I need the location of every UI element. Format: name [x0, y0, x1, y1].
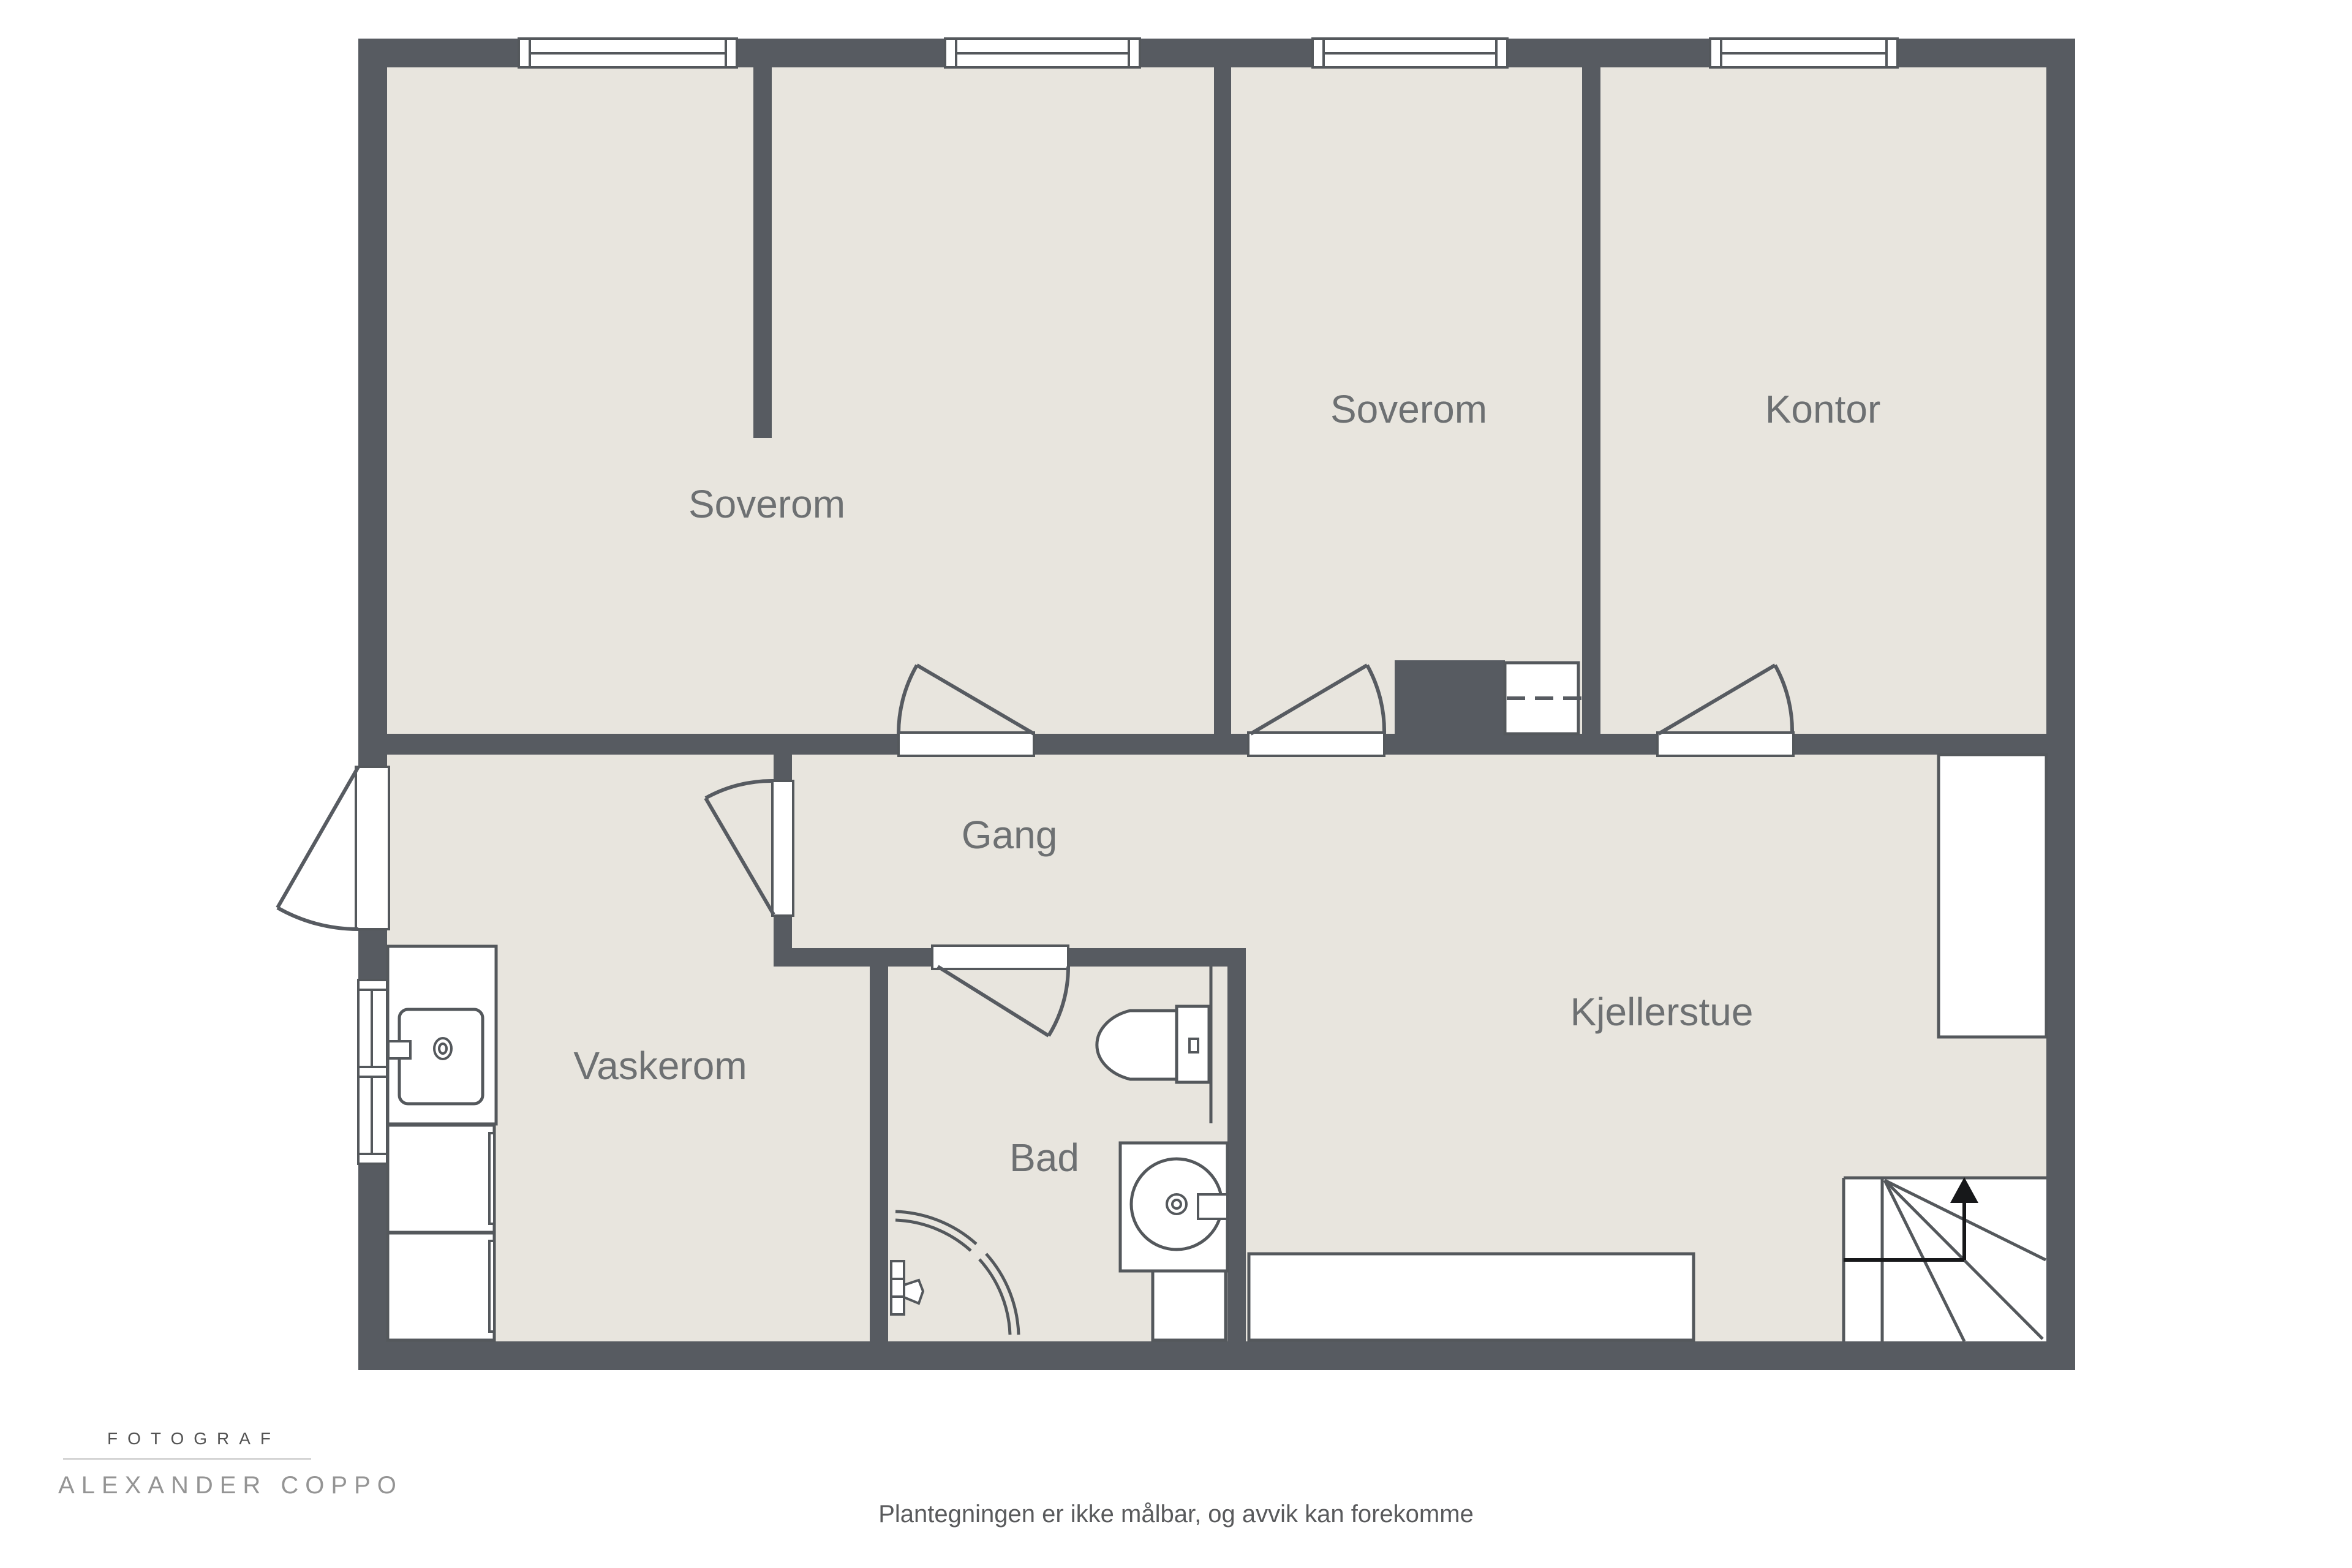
vaskerom-fixtures [388, 946, 496, 1340]
door-swing-icon [277, 767, 389, 929]
room-label-soverom-2: Soverom [1330, 387, 1487, 431]
wardrobe-icon [1939, 755, 2046, 1037]
toilet-icon [1097, 1006, 1209, 1082]
appliance-icon [388, 1233, 494, 1340]
floor-plan-page: Soverom Soverom Kontor Gang Vaskerom Bad… [0, 0, 2352, 1568]
window-icon [1313, 39, 1507, 67]
room-label-gang: Gang [962, 813, 1058, 857]
photographer-watermark: FOTOGRAF ALEXANDER COPPO [58, 1429, 403, 1499]
floor-plan-drawing: Soverom Soverom Kontor Gang Vaskerom Bad… [0, 0, 2352, 1568]
appliance-icon [388, 1125, 494, 1232]
window-icon [519, 39, 737, 67]
watermark-profession: FOTOGRAF [107, 1429, 281, 1448]
room-label-bad: Bad [1009, 1136, 1079, 1180]
wall-stub-soverom1 [753, 67, 772, 438]
watermark-name: ALEXANDER COPPO [58, 1472, 403, 1499]
wall-soverom2-kontor [1582, 67, 1600, 734]
chimney-icon [1395, 660, 1505, 734]
stairs-icon [1844, 1177, 2046, 1341]
window-icon [358, 980, 387, 1164]
room-label-kjellerstue: Kjellerstue [1570, 990, 1754, 1034]
washbasin-icon [388, 946, 496, 1124]
disclaimer-text: Plantegningen er ikke målbar, og avvik k… [878, 1501, 1474, 1528]
wall-hall-divider [387, 734, 2046, 755]
room-label-kontor: Kontor [1765, 387, 1881, 431]
wall-soverom1-soverom2 [1214, 67, 1231, 734]
bench-icon [1249, 1254, 1694, 1340]
cabinet-icon [1153, 1271, 1226, 1340]
window-icon [945, 39, 1140, 67]
window-icon [1710, 39, 1898, 67]
wall-vaskerom-bad [870, 967, 888, 1341]
room-label-vaskerom: Vaskerom [573, 1044, 747, 1088]
room-label-soverom-1: Soverom [688, 482, 845, 526]
hatch-dashed-icon [1505, 663, 1582, 734]
wall-bad-kjellerstue [1227, 948, 1246, 1341]
